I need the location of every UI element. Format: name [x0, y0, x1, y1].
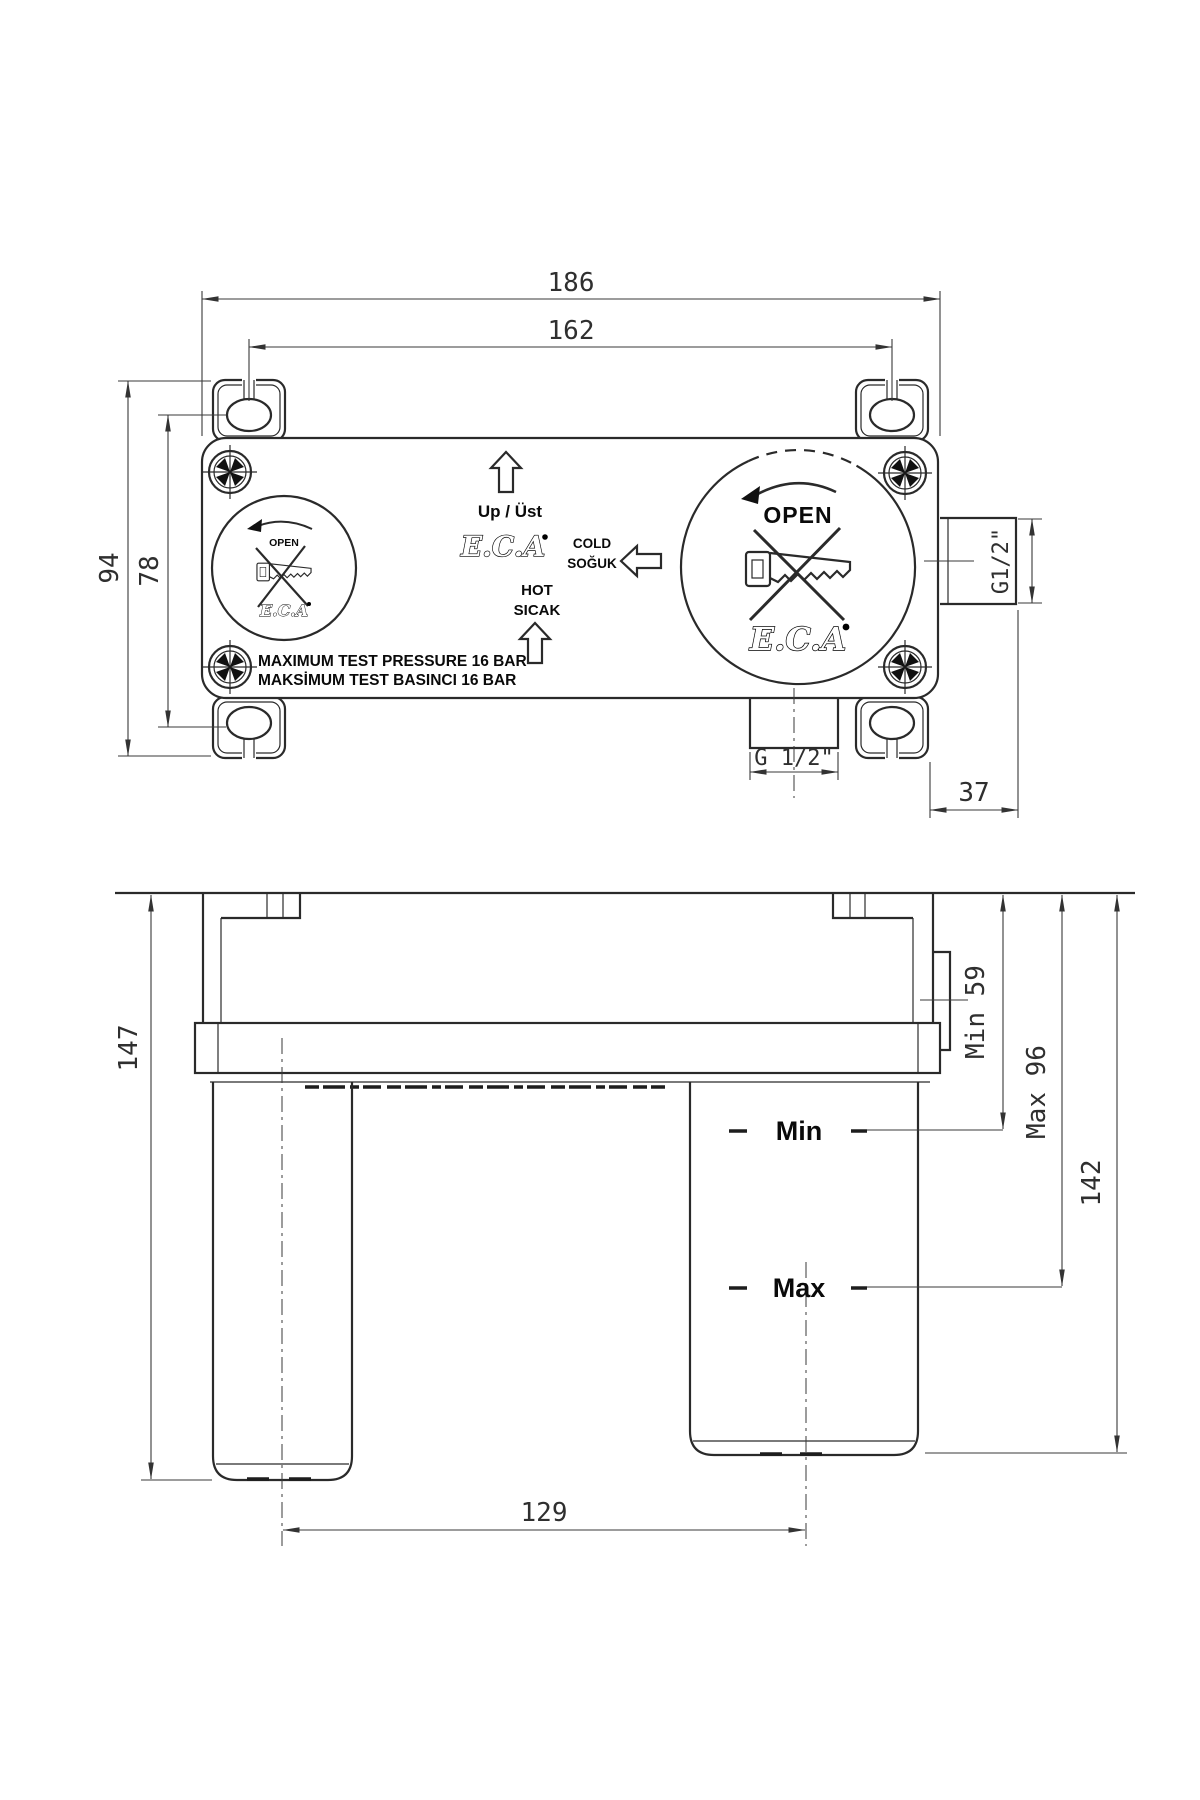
svg-text:E.C.A: E.C.A — [749, 620, 846, 658]
cold-label-tr: SOĞUK — [567, 556, 617, 571]
dim-min-59: Min 59 — [961, 895, 1003, 1129]
dim-outlet-offset: 37 — [930, 610, 1018, 818]
dim-g12-bottom: G 1/2" — [754, 746, 833, 771]
dim-129: 129 — [521, 1498, 568, 1528]
dim-94: 94 — [95, 552, 125, 583]
dim-width-holes: 162 — [249, 316, 892, 401]
front-view: 147 Min 59 Max 96 142 Min — [114, 893, 1135, 1546]
technical-drawing-page: OPEN E.C.A OPEN — [0, 0, 1200, 1800]
brand-logo: E.C.A — [259, 601, 311, 620]
cold-label: COLD — [573, 536, 611, 551]
faucet-mounting-box-drawing: OPEN E.C.A OPEN — [0, 0, 1200, 1800]
dim-147: 147 — [114, 1025, 144, 1072]
dim-width-overall: 186 — [202, 268, 940, 436]
top-view: OPEN E.C.A OPEN — [95, 268, 1042, 818]
dim-min59: Min 59 — [961, 965, 991, 1059]
right-bracket — [833, 893, 933, 1023]
pressure-line2: MAKSİMUM TEST BASINCI 16 BAR — [258, 672, 516, 689]
dim-37: 37 — [958, 778, 989, 808]
dim-186: 186 — [548, 268, 595, 298]
svg-text:E.C.A: E.C.A — [259, 601, 308, 620]
body-plate — [195, 1023, 940, 1087]
dim-162: 162 — [548, 316, 595, 346]
min-label: Min — [776, 1116, 823, 1146]
min-leader: Min — [729, 1116, 1003, 1146]
left-bracket — [203, 893, 300, 1023]
bottom-outlet — [750, 688, 838, 798]
dim-g12-side: G1/2" — [989, 528, 1014, 594]
hot-label-tr: SICAK — [514, 602, 561, 619]
pressure-line1: MAXIMUM TEST PRESSURE 16 BAR — [258, 653, 527, 670]
dim-78: 78 — [135, 555, 165, 586]
dim-outlet-bottom: G 1/2" — [750, 746, 838, 780]
dim-leg-spacing: 129 — [283, 1498, 805, 1530]
dim-max96: Max 96 — [1022, 1045, 1052, 1139]
max-leader: Max — [729, 1273, 1062, 1303]
brand-logo: E.C.A — [749, 620, 850, 658]
open-label: OPEN — [763, 502, 832, 528]
brand-logo: E.C.A — [460, 530, 548, 563]
svg-text:E.C.A: E.C.A — [460, 530, 545, 563]
max-label: Max — [773, 1273, 826, 1303]
dim-height-147: 147 — [114, 895, 212, 1480]
dim-total-142: 142 — [925, 895, 1127, 1453]
open-label: OPEN — [269, 537, 299, 549]
dim-142: 142 — [1077, 1160, 1107, 1207]
hot-label: HOT — [521, 582, 553, 599]
up-label: Up / Üst — [478, 502, 543, 521]
dim-max-96: Max 96 — [1022, 895, 1062, 1286]
